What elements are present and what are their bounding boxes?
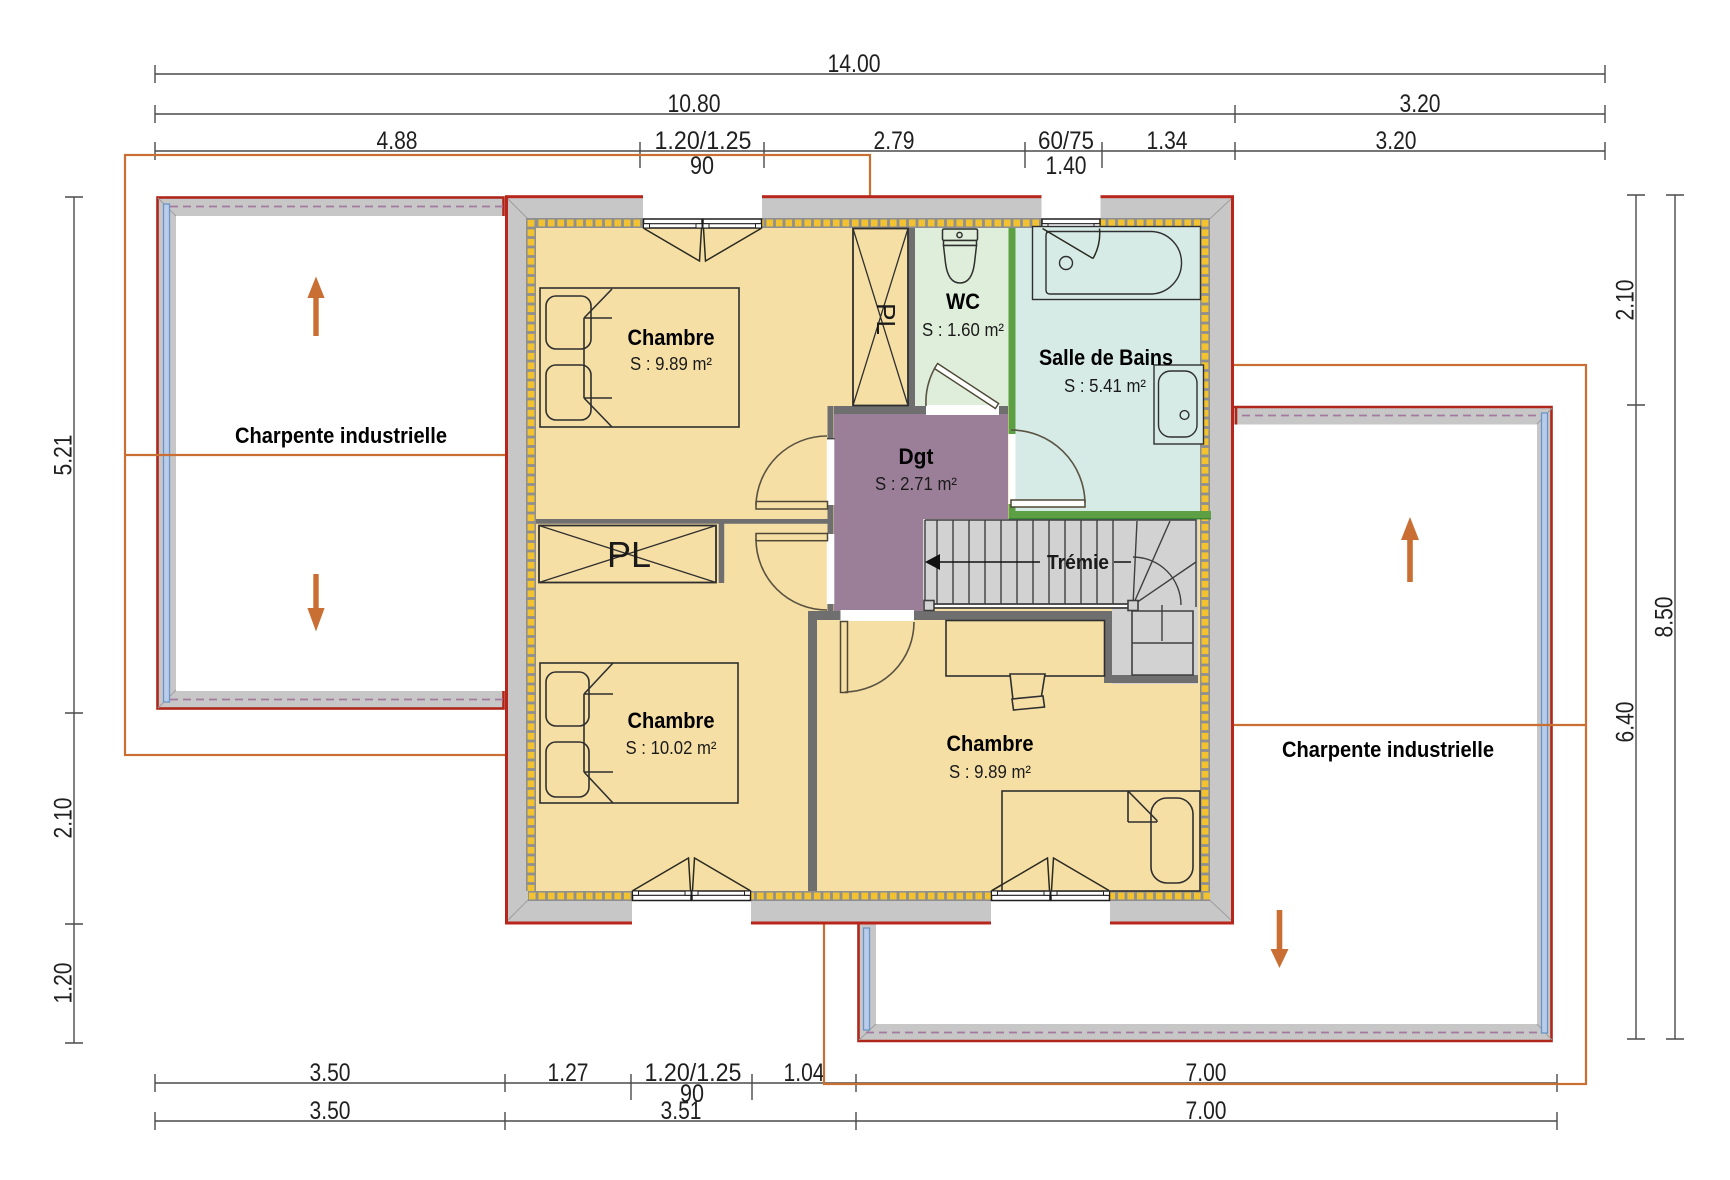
- svg-text:1.40: 1.40: [1046, 152, 1087, 180]
- svg-text:S : 10.02 m²: S : 10.02 m²: [626, 738, 717, 758]
- svg-text:1.04: 1.04: [784, 1059, 825, 1087]
- svg-text:8.50: 8.50: [1651, 597, 1679, 638]
- svg-text:S : 9.89 m²: S : 9.89 m²: [949, 762, 1031, 782]
- svg-text:Trémie: Trémie: [1047, 552, 1109, 574]
- svg-text:2.79: 2.79: [874, 127, 915, 155]
- svg-text:Dgt: Dgt: [899, 444, 935, 469]
- svg-text:90: 90: [690, 152, 714, 180]
- svg-text:5.21: 5.21: [50, 435, 78, 476]
- svg-text:S : 2.71 m²: S : 2.71 m²: [875, 474, 957, 494]
- svg-text:2.10: 2.10: [50, 798, 78, 839]
- svg-text:3.20: 3.20: [1376, 127, 1417, 155]
- svg-text:10.80: 10.80: [668, 90, 721, 118]
- svg-text:1.20: 1.20: [50, 963, 78, 1004]
- svg-text:PL: PL: [607, 534, 651, 575]
- svg-text:WC: WC: [946, 289, 980, 314]
- svg-text:3.20: 3.20: [1400, 90, 1441, 118]
- svg-text:PL: PL: [871, 303, 901, 335]
- svg-text:S : 5.41 m²: S : 5.41 m²: [1064, 376, 1146, 396]
- svg-text:7.00: 7.00: [1186, 1059, 1227, 1087]
- svg-text:7.00: 7.00: [1186, 1097, 1227, 1125]
- svg-text:3.50: 3.50: [310, 1059, 351, 1087]
- svg-text:Chambre: Chambre: [628, 708, 715, 733]
- svg-text:1.20/1.25: 1.20/1.25: [655, 127, 752, 155]
- svg-text:Salle de Bains: Salle de Bains: [1039, 345, 1173, 370]
- svg-text:2.10: 2.10: [1612, 280, 1640, 321]
- svg-text:Chambre: Chambre: [947, 731, 1034, 756]
- svg-text:Chambre: Chambre: [628, 325, 715, 350]
- svg-text:Charpente industrielle: Charpente industrielle: [235, 423, 447, 448]
- svg-text:3.50: 3.50: [310, 1097, 351, 1125]
- svg-text:S : 9.89 m²: S : 9.89 m²: [630, 354, 712, 374]
- svg-text:6.40: 6.40: [1612, 702, 1640, 743]
- svg-text:4.88: 4.88: [377, 127, 418, 155]
- svg-text:14.00: 14.00: [828, 50, 881, 78]
- svg-text:1.34: 1.34: [1147, 127, 1188, 155]
- svg-text:60/75: 60/75: [1038, 127, 1094, 155]
- svg-text:Charpente industrielle: Charpente industrielle: [1282, 737, 1494, 762]
- svg-text:1.27: 1.27: [548, 1059, 589, 1087]
- svg-text:3.51: 3.51: [661, 1097, 702, 1125]
- svg-text:S : 1.60 m²: S : 1.60 m²: [922, 320, 1004, 340]
